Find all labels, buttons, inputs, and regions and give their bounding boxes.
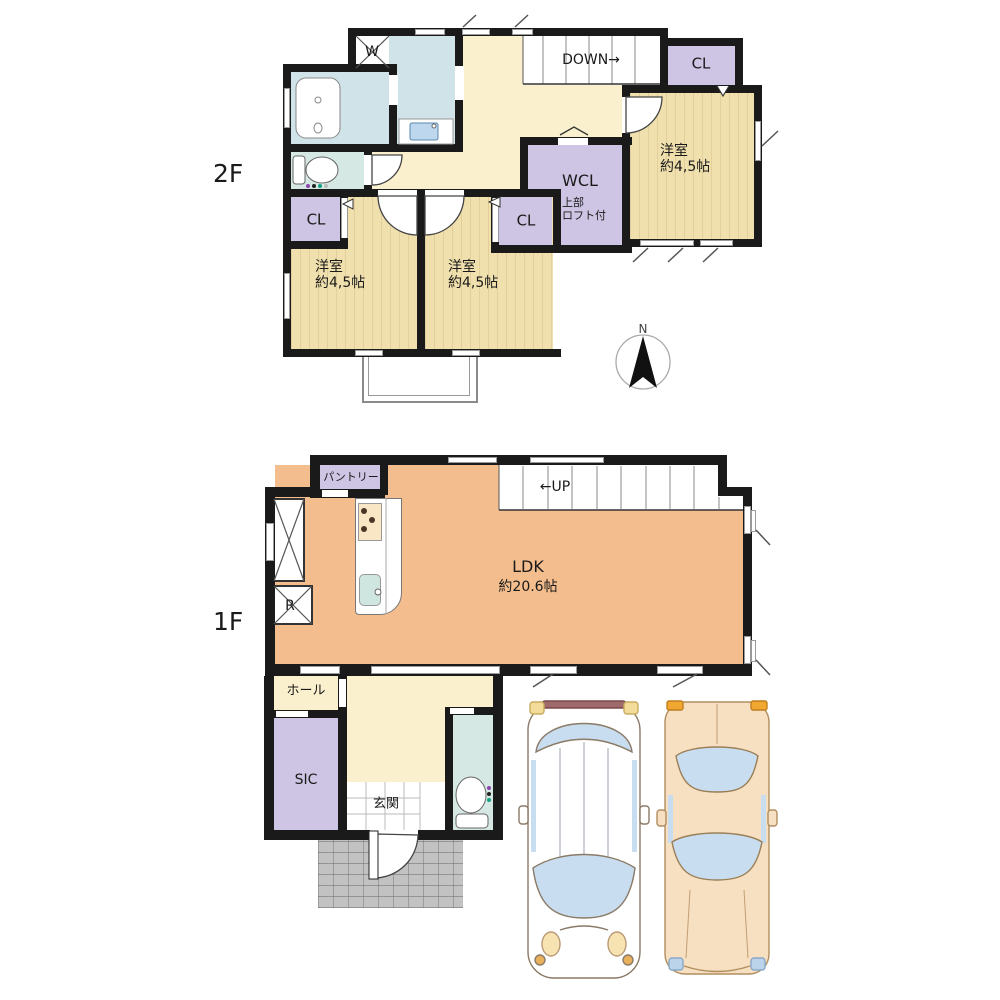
wcl-note2: ロフト付 bbox=[562, 210, 606, 223]
toilet-room-1f bbox=[453, 715, 493, 830]
toilet-room-2f bbox=[291, 152, 364, 189]
storage-closet-1f bbox=[273, 498, 305, 582]
ldk-label: LDK bbox=[512, 558, 544, 576]
balcony-inner bbox=[368, 357, 470, 396]
bedroom-left-name: 洋室 bbox=[315, 259, 343, 275]
bedroom-left-size: 約4,5帖 bbox=[315, 275, 365, 291]
car-sedan bbox=[657, 701, 777, 974]
floor2-label: 2F bbox=[213, 160, 243, 189]
hall-2f-upper bbox=[463, 36, 523, 85]
pantry-label: パントリー bbox=[323, 472, 379, 485]
stairs-down-label: DOWN→ bbox=[562, 52, 620, 68]
strip-above-toilet bbox=[445, 676, 493, 707]
compass bbox=[616, 335, 670, 389]
bedroom-middle-name: 洋室 bbox=[448, 259, 476, 275]
compass-n-label: N bbox=[639, 323, 648, 337]
stone-approach bbox=[318, 840, 463, 908]
bathroom-2f bbox=[291, 72, 389, 144]
bedroom-middle-label: 洋室 約4,5帖 bbox=[448, 259, 498, 291]
floor1-label: 1F bbox=[213, 608, 243, 637]
entrance-hall bbox=[347, 676, 445, 782]
refrigerator-label: R bbox=[285, 598, 295, 614]
kitchen-sink bbox=[359, 574, 381, 606]
hall-label: ホール bbox=[286, 685, 325, 700]
wcl-label-block: WCL 上部 ロフト付 bbox=[562, 172, 606, 223]
entrance-label: 玄関 bbox=[373, 798, 399, 813]
wcl-label: WCL bbox=[562, 172, 606, 190]
stairs-1f bbox=[499, 465, 743, 510]
bedroom-right-label: 洋室 約4,5帖 bbox=[660, 143, 710, 175]
ldk-size-label: 約20.6帖 bbox=[498, 579, 557, 595]
washer-label: W bbox=[365, 44, 379, 60]
stairs-up-label: ←UP bbox=[540, 479, 570, 495]
bedroom-right-name: 洋室 bbox=[660, 143, 688, 159]
bedroom-left-label: 洋室 約4,5帖 bbox=[315, 259, 365, 291]
closet-tr-label: CL bbox=[692, 55, 711, 72]
stove bbox=[358, 503, 382, 541]
car-minivan bbox=[519, 701, 649, 978]
closet-left-label: CL bbox=[307, 211, 326, 228]
sic-label: SIC bbox=[295, 772, 318, 788]
closet-middle-label: CL bbox=[517, 212, 536, 229]
bedroom-right-size: 約4,5帖 bbox=[660, 159, 710, 175]
hall-2f-lower bbox=[372, 152, 463, 189]
ldk-right-strip bbox=[727, 496, 743, 664]
bedroom-middle-size: 約4,5帖 bbox=[448, 275, 498, 291]
floor-plan: 2F W DOWN→ CL 洋室 約4,5帖 WCL 上部 ロフト付 CL CL… bbox=[0, 0, 1000, 1000]
